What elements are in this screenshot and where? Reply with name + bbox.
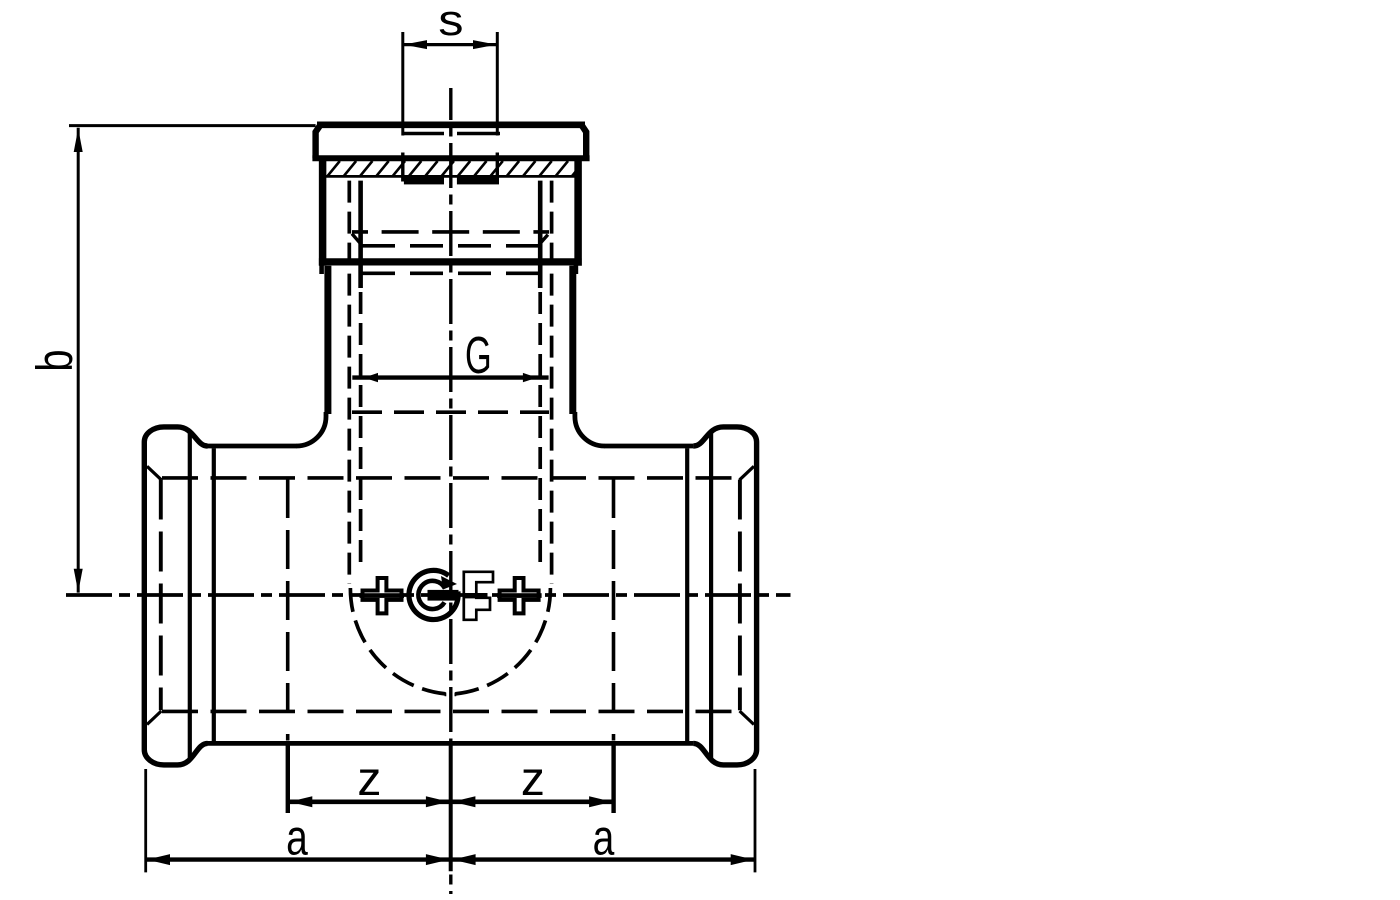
svg-text:a: a: [593, 809, 615, 866]
svg-text:z: z: [521, 753, 545, 806]
svg-text:z: z: [357, 753, 381, 806]
svg-text:b: b: [26, 350, 83, 372]
svg-text:s: s: [438, 0, 463, 45]
svg-text:a: a: [286, 809, 308, 866]
svg-text:G: G: [465, 327, 492, 385]
